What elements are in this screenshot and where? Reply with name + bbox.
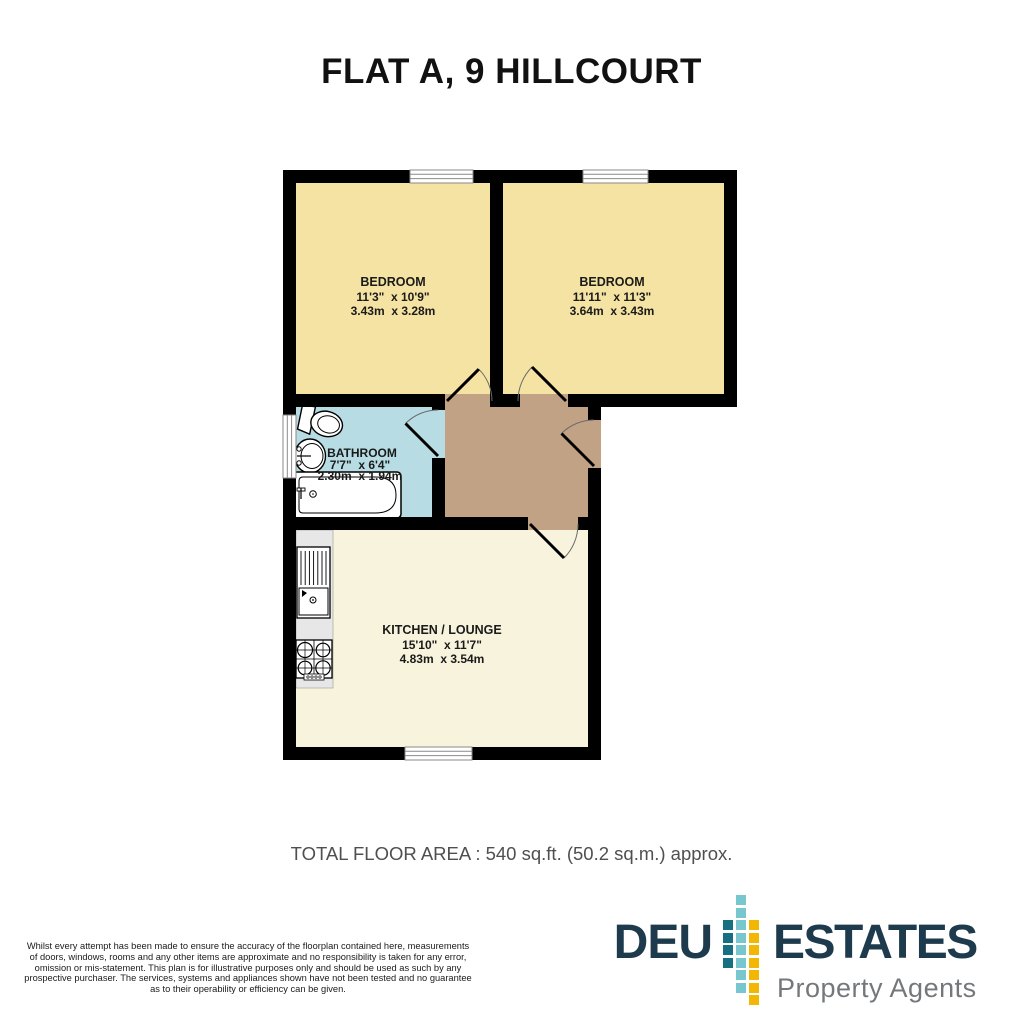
logo-square <box>723 945 733 955</box>
logo-square <box>736 958 746 968</box>
bathroom-dim-metric: 2.30m x 1.94m <box>318 469 403 483</box>
disclaimer-line: as to their operability or efficiency ca… <box>8 984 488 995</box>
window-icon <box>410 170 473 183</box>
disclaimer-line: omission or mis-statement. This plan is … <box>8 963 488 974</box>
logo-square <box>736 908 746 918</box>
window-icon <box>405 747 472 760</box>
bathroom-sink-icon <box>295 439 326 473</box>
hallway-area <box>432 394 601 530</box>
kitchen-label: KITCHEN / LOUNGE <box>382 623 501 637</box>
floorplan: BEDROOM 11'3" x 10'9" 3.43m x 3.28m BEDR… <box>0 0 1023 1023</box>
window-icon <box>583 170 648 183</box>
bedroom2-dim-metric: 3.64m x 3.43m <box>570 304 655 318</box>
bedroom1-dim-metric: 3.43m x 3.28m <box>351 304 436 318</box>
logo-square <box>749 920 759 930</box>
bedroom1-dim-imperial: 11'3" x 10'9" <box>356 290 429 304</box>
logo-square <box>736 983 746 993</box>
logo-square <box>749 970 759 980</box>
logo-square <box>749 945 759 955</box>
kitchen-dim-imperial: 15'10" x 11'7" <box>402 638 482 652</box>
logo-square <box>749 983 759 993</box>
window-icon <box>283 415 296 478</box>
kitchen-sink-icon <box>297 547 330 618</box>
logo-text-estates: ESTATES <box>773 919 977 967</box>
disclaimer-line: Whilst every attempt has been made to en… <box>8 941 488 952</box>
logo-square <box>749 933 759 943</box>
logo-text-deu: DEU <box>598 919 712 969</box>
kitchen-dim-metric: 4.83m x 3.54m <box>400 652 485 666</box>
disclaimer: Whilst every attempt has been made to en… <box>8 941 488 995</box>
hob-icon <box>296 640 333 680</box>
logo-tagline: Property Agents <box>777 974 977 1002</box>
logo-square <box>749 958 759 968</box>
disclaimer-line: prospective purchaser. The services, sys… <box>8 973 488 984</box>
logo-square <box>736 970 746 980</box>
logo-square <box>736 895 746 905</box>
logo-square <box>723 933 733 943</box>
bedroom1-label: BEDROOM <box>360 275 425 289</box>
bedroom2-dim-imperial: 11'11" x 11'3" <box>573 290 652 304</box>
logo-square <box>736 920 746 930</box>
logo-square <box>736 933 746 943</box>
total-floor-area: TOTAL FLOOR AREA : 540 sq.ft. (50.2 sq.m… <box>0 843 1023 865</box>
logo-square <box>736 945 746 955</box>
bedroom2-label: BEDROOM <box>579 275 644 289</box>
logo-square <box>723 920 733 930</box>
logo-square <box>749 995 759 1005</box>
logo-square <box>723 958 733 968</box>
disclaimer-line: of doors, windows, rooms and any other i… <box>8 952 488 963</box>
